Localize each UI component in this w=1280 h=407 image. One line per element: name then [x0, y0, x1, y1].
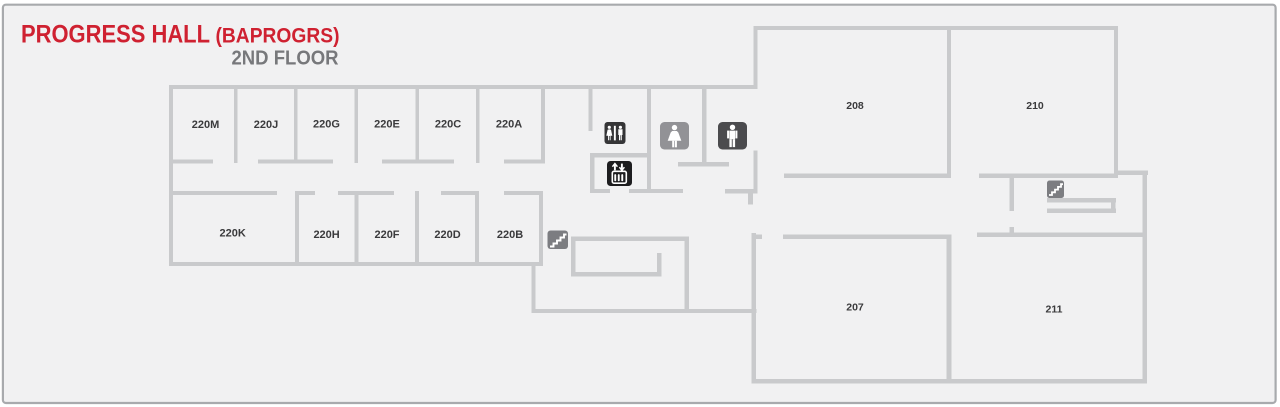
svg-text:210: 210: [1026, 100, 1044, 112]
svg-text:220F: 220F: [374, 229, 399, 241]
svg-text:220K: 220K: [220, 228, 246, 240]
svg-text:220D: 220D: [434, 229, 460, 241]
svg-text:2ND FLOOR: 2ND FLOOR: [232, 47, 339, 70]
svg-text:211: 211: [1046, 304, 1063, 316]
svg-text:207: 207: [846, 302, 864, 314]
svg-text:220J: 220J: [254, 119, 278, 131]
svg-text:220M: 220M: [192, 119, 220, 131]
svg-text:(BAPROGRS): (BAPROGRS): [216, 24, 340, 48]
svg-text:220E: 220E: [374, 119, 400, 131]
svg-text:208: 208: [846, 100, 864, 112]
svg-text:220G: 220G: [313, 119, 340, 131]
svg-text:220A: 220A: [496, 119, 522, 131]
svg-text:220H: 220H: [313, 229, 339, 241]
svg-text:220B: 220B: [497, 229, 523, 241]
svg-text:PROGRESS HALL: PROGRESS HALL: [21, 21, 210, 49]
svg-text:220C: 220C: [435, 119, 461, 131]
